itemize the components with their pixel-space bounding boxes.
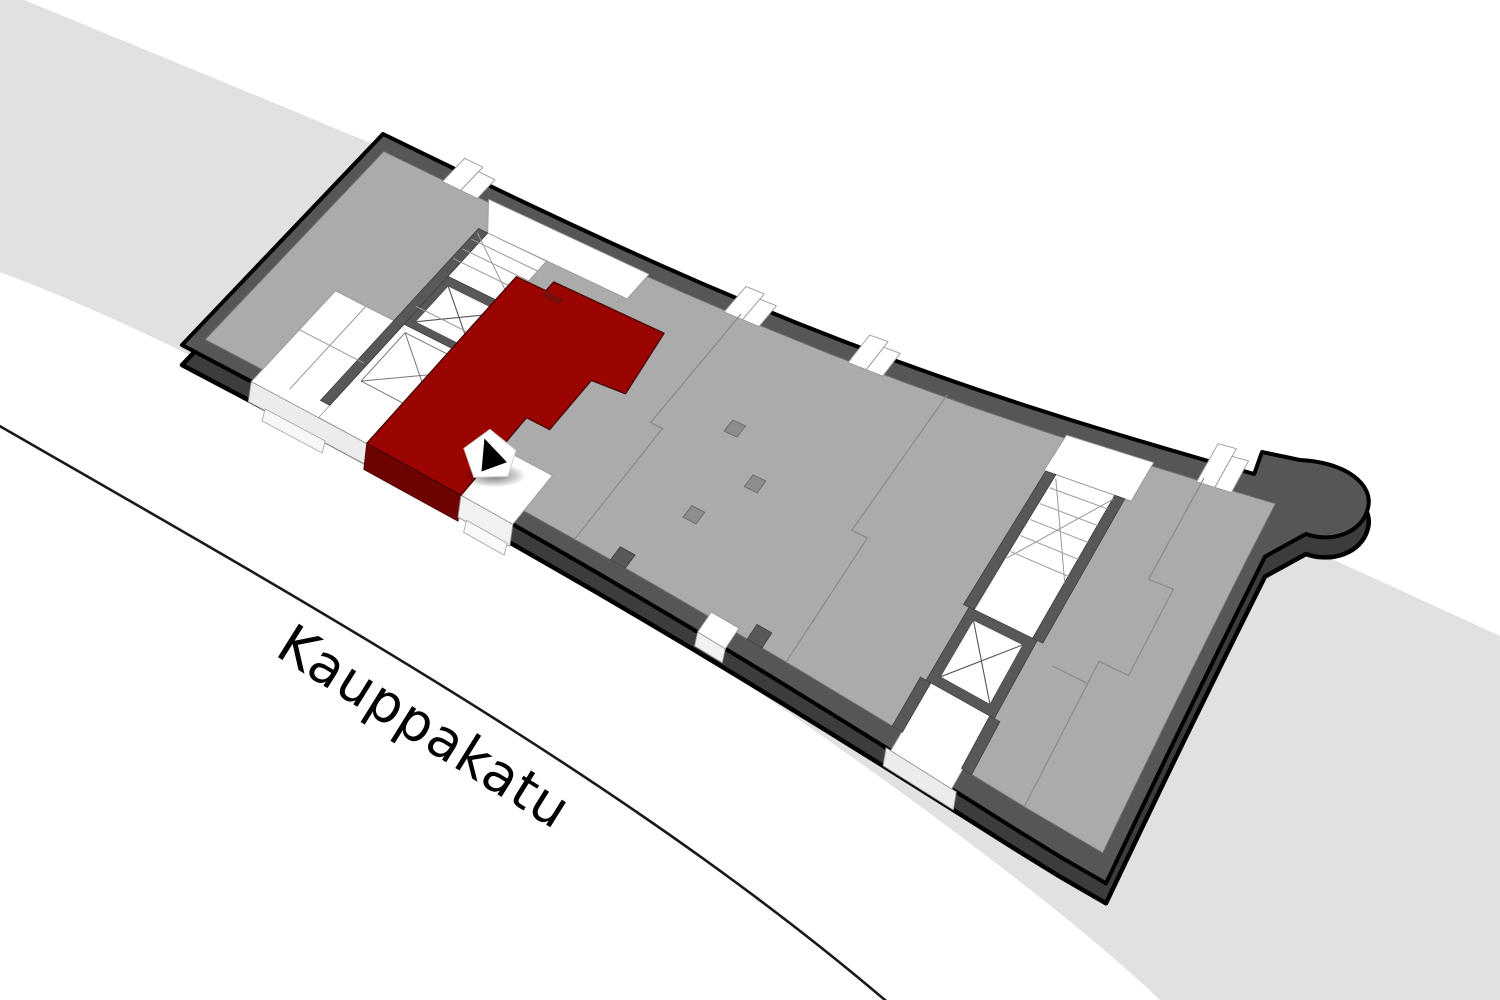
floorplan-canvas: [0, 0, 1500, 1000]
unit-locator-view: { "page": { "width": 1500, "height": 100…: [0, 0, 1500, 1000]
